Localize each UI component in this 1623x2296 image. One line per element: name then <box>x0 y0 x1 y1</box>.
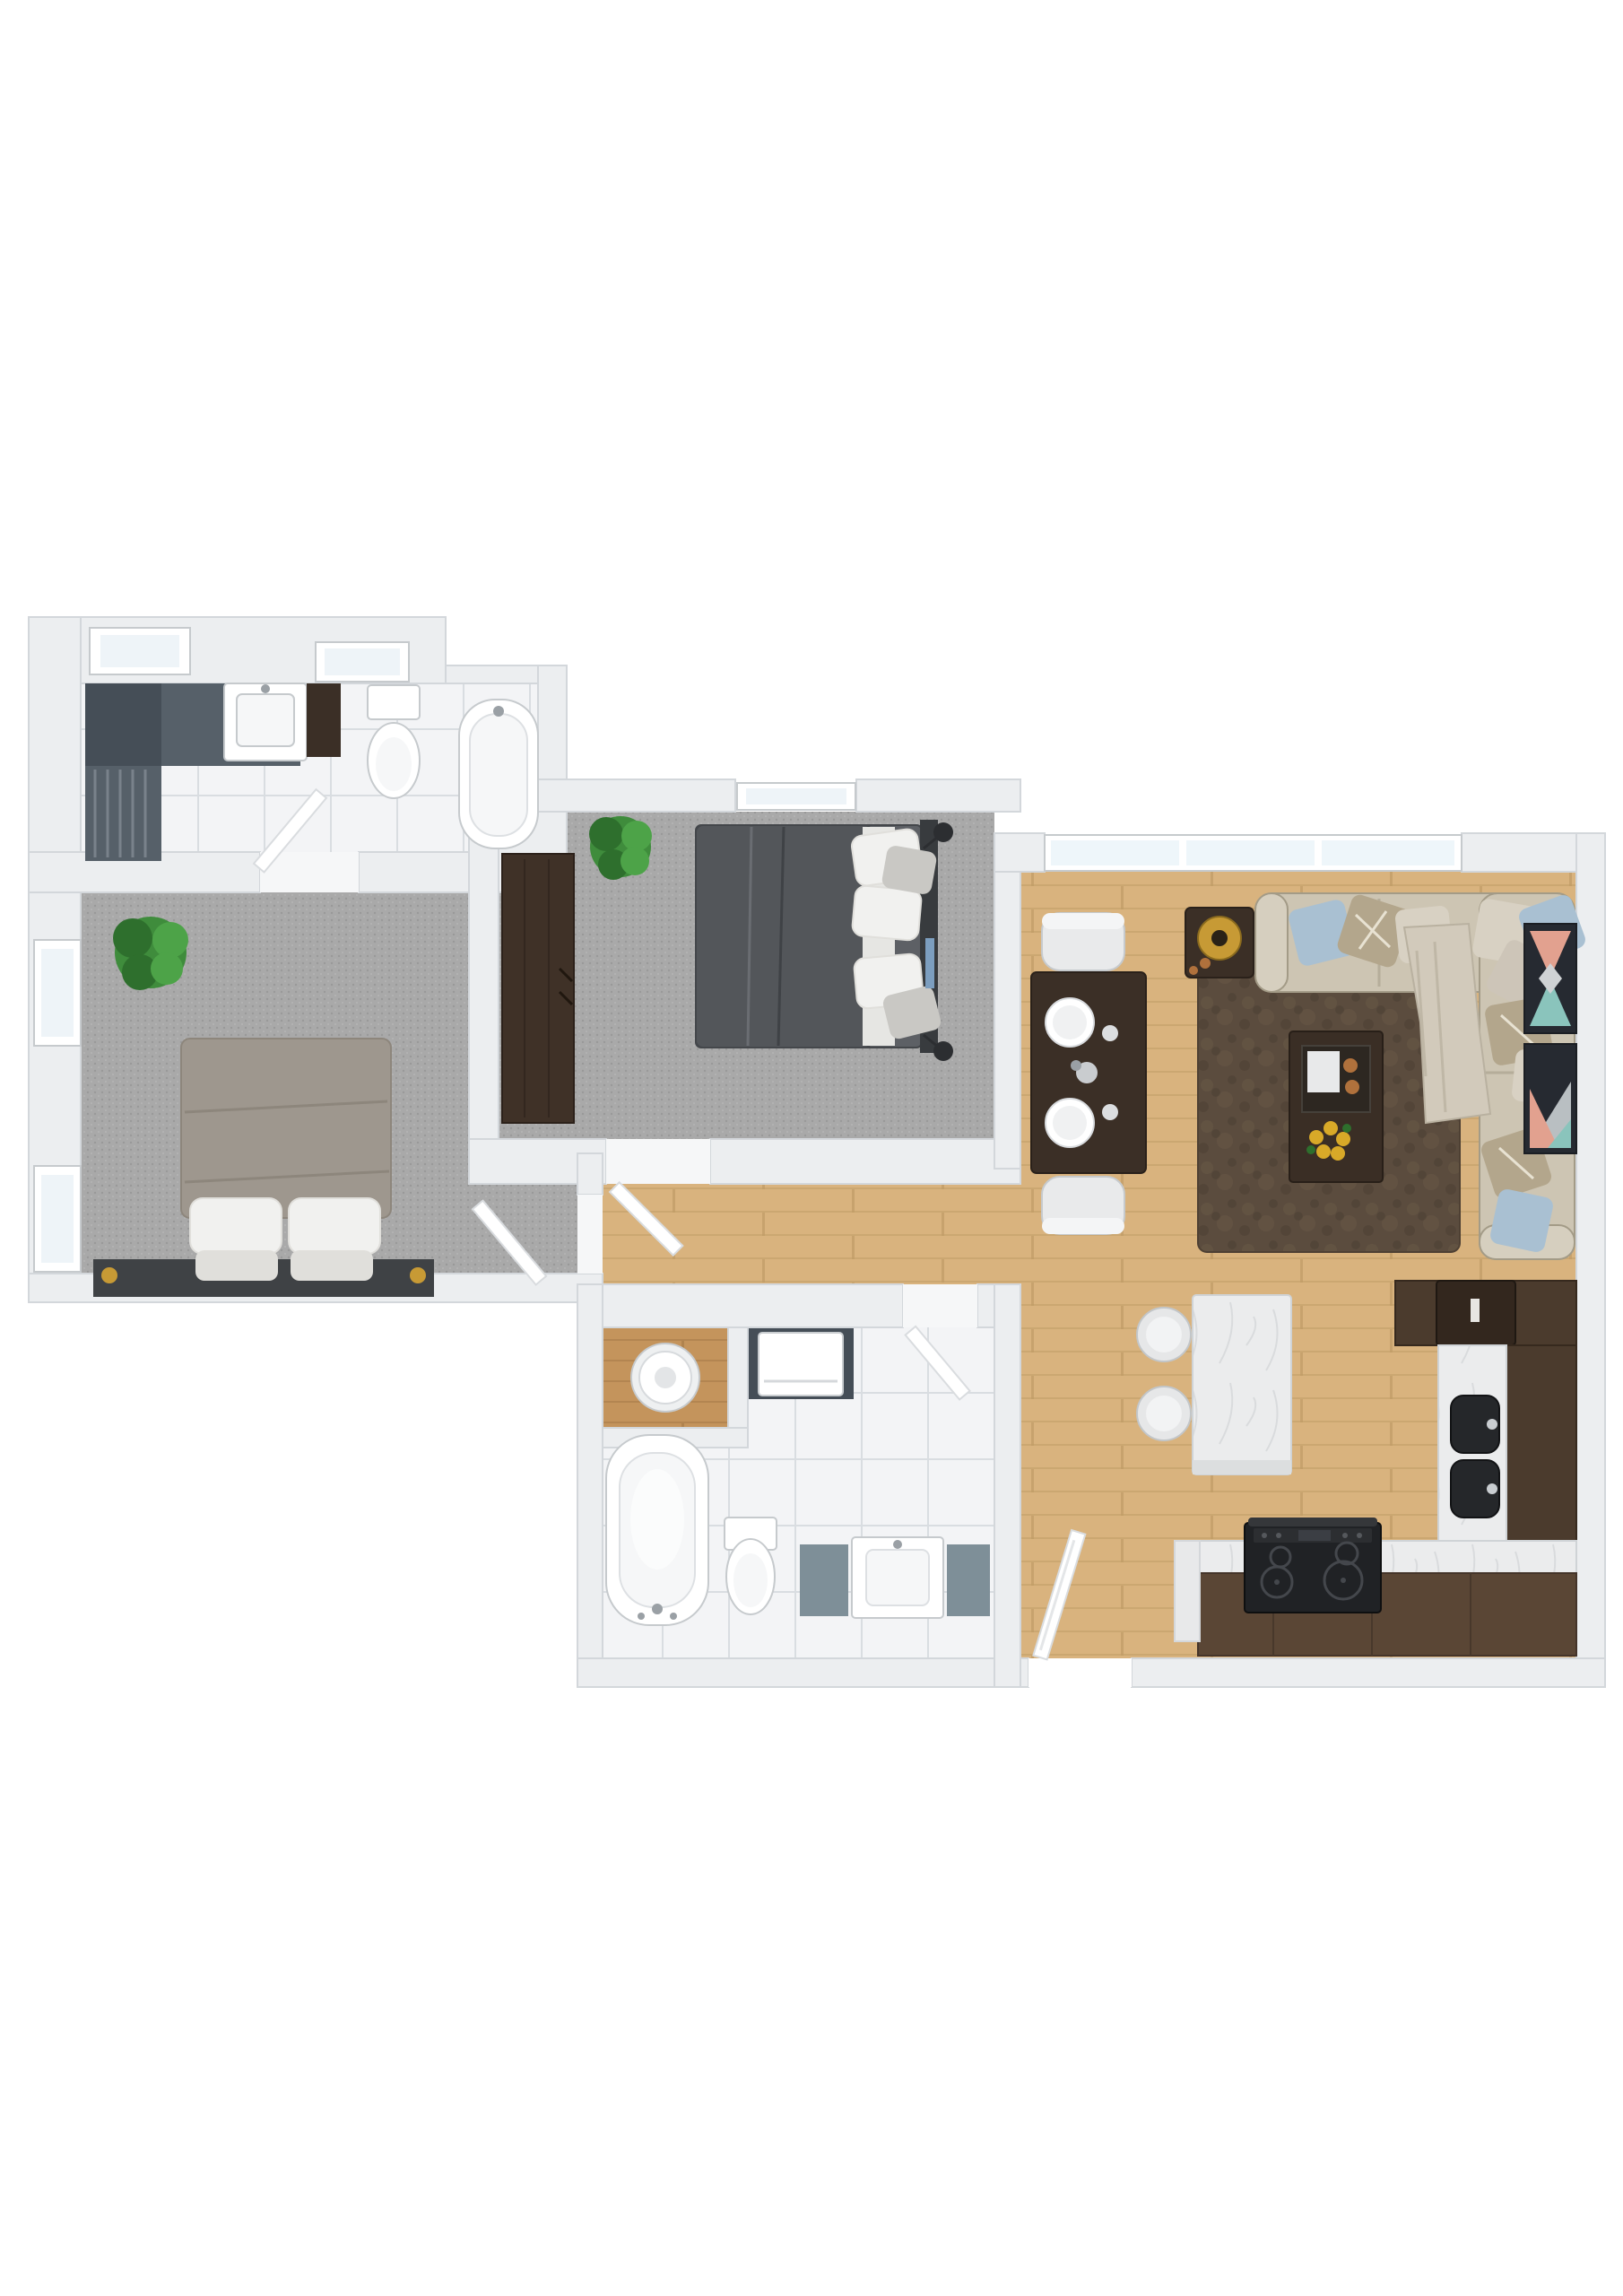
washer-drum-ring <box>655 1367 676 1388</box>
living-window-pane-1 <box>1051 840 1179 865</box>
burner-2-center <box>1341 1578 1346 1583</box>
dining-centerpiece-2 <box>1071 1060 1081 1071</box>
dining-glass-2 <box>1102 1104 1118 1120</box>
floor-plan <box>0 0 1623 2296</box>
plant-leaf-2 <box>152 922 188 958</box>
hallway-living-opening-floor <box>994 1184 1020 1284</box>
plant2-leaf-4 <box>621 847 649 875</box>
toilet-tank <box>368 685 420 719</box>
island <box>1193 1295 1291 1474</box>
pedestal-sink-basin <box>237 694 294 746</box>
wall-bathroom2-west <box>577 1284 603 1687</box>
wall-bedroom2-top-right <box>856 779 1020 812</box>
fridge-handle <box>1471 1299 1480 1322</box>
dining-glass-1 <box>1102 1025 1118 1041</box>
floor-plan-canvas <box>0 0 1623 2296</box>
headboard-art <box>925 938 934 988</box>
shower-curtain <box>85 766 161 861</box>
plant2-leaf-2 <box>621 821 652 851</box>
wall-living-south-right <box>1132 1658 1605 1687</box>
stove-knob-1 <box>1262 1533 1267 1538</box>
bedroom2-window-glass <box>746 788 846 804</box>
entry-doorway <box>1028 1658 1132 1687</box>
sink-faucet-1 <box>1487 1419 1497 1430</box>
bathtub-inner <box>470 714 527 836</box>
coffee-table-card <box>1307 1051 1340 1092</box>
skylight-window-glass-1 <box>100 635 179 667</box>
bed2-pillow-2 <box>852 885 923 941</box>
bed-blanket <box>181 1039 391 1218</box>
wall-hallway-south-left <box>577 1284 903 1327</box>
bathroom2-doorway <box>903 1284 977 1327</box>
bathtub-faucet <box>493 706 504 717</box>
master-window-glass-1 <box>41 949 74 1037</box>
bathtub2-basin <box>630 1469 684 1570</box>
vanity-ledge <box>307 683 341 757</box>
bathtub2-faucet <box>652 1604 663 1614</box>
master-window-glass-2 <box>41 1175 74 1263</box>
sunflower-2 <box>1324 1121 1338 1135</box>
burner-1-center <box>1274 1579 1280 1585</box>
sunflower-leaf-2 <box>1342 1124 1351 1133</box>
living-window-pane-2 <box>1186 840 1315 865</box>
wardrobe <box>502 854 574 1123</box>
wall-living-top-left <box>994 833 1045 872</box>
stove-knob-3 <box>1342 1533 1348 1538</box>
sunflower-4 <box>1316 1144 1331 1159</box>
layer-living-dining-room <box>1031 892 1588 1259</box>
table-lamp-left <box>101 1267 117 1283</box>
dining-plate-2-inner <box>1053 1106 1087 1140</box>
side-table-lamp-core <box>1211 930 1228 946</box>
skylight-window-glass-2 <box>325 648 400 675</box>
island-shade <box>1193 1460 1291 1474</box>
table-lamp-right <box>410 1267 426 1283</box>
wall-hallway-west-stub <box>577 1153 603 1195</box>
floor-plan-root <box>29 617 1605 1687</box>
wall-living-east <box>1576 833 1605 1687</box>
bedroom2-doorway <box>606 1139 710 1184</box>
living-window-pane-3 <box>1322 840 1454 865</box>
toilet2-seat <box>733 1553 768 1607</box>
wall-bathroom2-east <box>994 1284 1020 1687</box>
vanity-basin <box>866 1550 929 1605</box>
wall-living-south-left <box>1020 1658 1028 1687</box>
counter-left-cap <box>1175 1541 1200 1641</box>
bed-pillow-2 <box>289 1198 380 1254</box>
reading-lamp-top <box>933 822 953 842</box>
sink-faucet-2 <box>1487 1483 1497 1494</box>
dining-chair-top-back <box>1042 913 1124 929</box>
sofa-arm-left <box>1255 893 1288 992</box>
sunflower-5 <box>1331 1146 1345 1161</box>
coffee-candle-2 <box>1345 1080 1359 1094</box>
coffee-candle-1 <box>1343 1058 1358 1073</box>
stove-display <box>1298 1530 1331 1541</box>
bar-stool-1-seat <box>1146 1317 1182 1352</box>
bed-pillow-4 <box>291 1250 373 1281</box>
sink-faucet <box>261 684 270 693</box>
plant-leaf-4 <box>151 952 183 985</box>
dining-plate-1-inner <box>1053 1005 1087 1039</box>
sunflower-1 <box>1309 1130 1324 1144</box>
bathtub2-handle-2 <box>670 1613 677 1620</box>
bath-mat-right <box>947 1544 990 1616</box>
dining-chair-bottom-back <box>1042 1218 1124 1234</box>
bathtub2-handle-1 <box>638 1613 645 1620</box>
side-table-candle-2 <box>1189 966 1198 975</box>
bed2-pillow-3 <box>881 845 937 896</box>
sofa-pillow-blue-3 <box>1488 1187 1555 1254</box>
stove-knob-2 <box>1276 1533 1281 1538</box>
wall-bathroom2-south <box>577 1658 1020 1687</box>
reading-lamp-bottom <box>933 1041 953 1061</box>
wall-bedroom2-south-right <box>710 1139 1020 1184</box>
bed-pillow-1 <box>190 1198 282 1254</box>
sunflower-3 <box>1336 1132 1350 1146</box>
sunflower-leaf-1 <box>1306 1145 1315 1154</box>
stove-back-bar <box>1248 1518 1377 1526</box>
stove-knob-4 <box>1357 1533 1362 1538</box>
bed-pillow-3 <box>195 1250 278 1281</box>
washer-box <box>759 1333 843 1396</box>
bar-stool-2-seat <box>1146 1396 1182 1431</box>
wall-living-west <box>994 833 1020 1169</box>
plant2-leaf-1 <box>589 817 623 851</box>
side-table-candle-1 <box>1200 958 1211 969</box>
vanity-faucet <box>893 1540 902 1549</box>
plant-leaf-1 <box>113 918 152 958</box>
bath-mat-left <box>800 1544 848 1616</box>
master-doorway <box>577 1195 603 1274</box>
toilet-seat <box>376 737 412 791</box>
